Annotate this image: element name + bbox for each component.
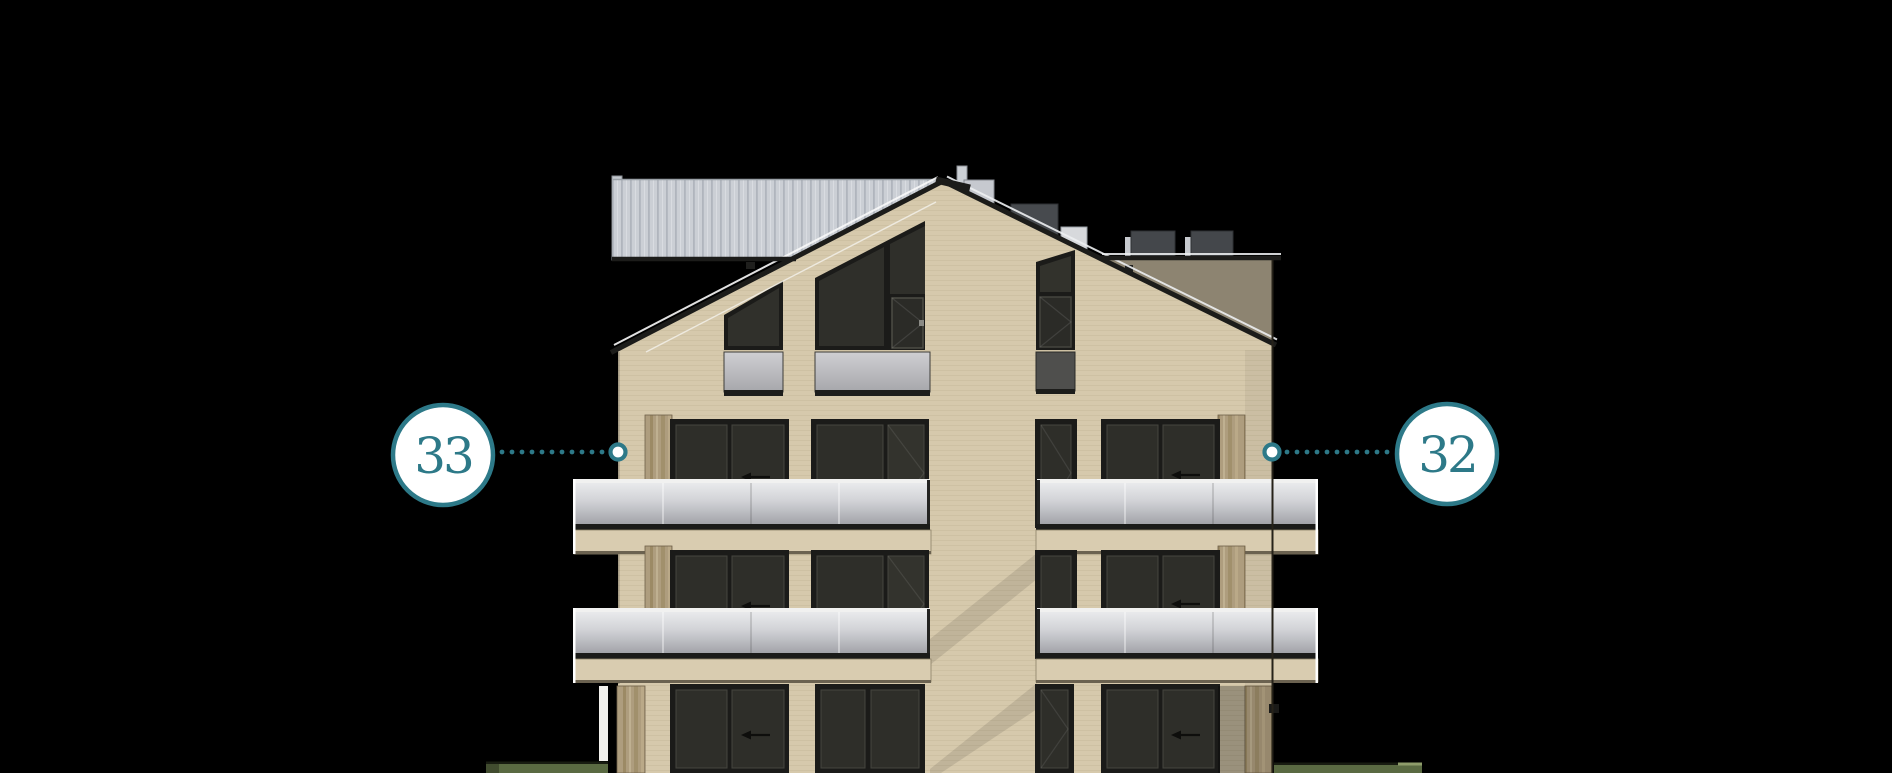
elevation-scene: 33 32	[0, 0, 1892, 773]
grass-strip-right	[1274, 763, 1422, 773]
unit-32-label: 32	[1418, 426, 1476, 484]
floor3-balcony-left	[573, 479, 931, 554]
floor2-balcony-right	[1036, 608, 1318, 683]
leader-dots-icon	[500, 450, 605, 455]
floor2-balcony-left	[573, 608, 931, 683]
balcony-slab	[1036, 659, 1318, 682]
unit-33-label: 33	[414, 427, 472, 485]
door-handle	[919, 320, 924, 326]
eave-fixture	[746, 262, 755, 269]
grass-strip-left	[486, 762, 608, 773]
point-marker-icon	[611, 445, 626, 460]
wall-fixture	[1269, 704, 1279, 713]
attic-door	[892, 298, 923, 348]
unit-32-badge[interactable]: 32	[1397, 404, 1497, 504]
point-marker-icon	[1265, 445, 1280, 460]
corner-pilaster	[599, 686, 608, 761]
leader-dots-icon	[1285, 450, 1390, 455]
balcony-slab	[574, 659, 931, 682]
building-elevation-illustration: 33 32	[0, 0, 1892, 773]
floor3-balcony-right	[1036, 479, 1318, 554]
unit-33-badge[interactable]: 33	[393, 405, 493, 505]
